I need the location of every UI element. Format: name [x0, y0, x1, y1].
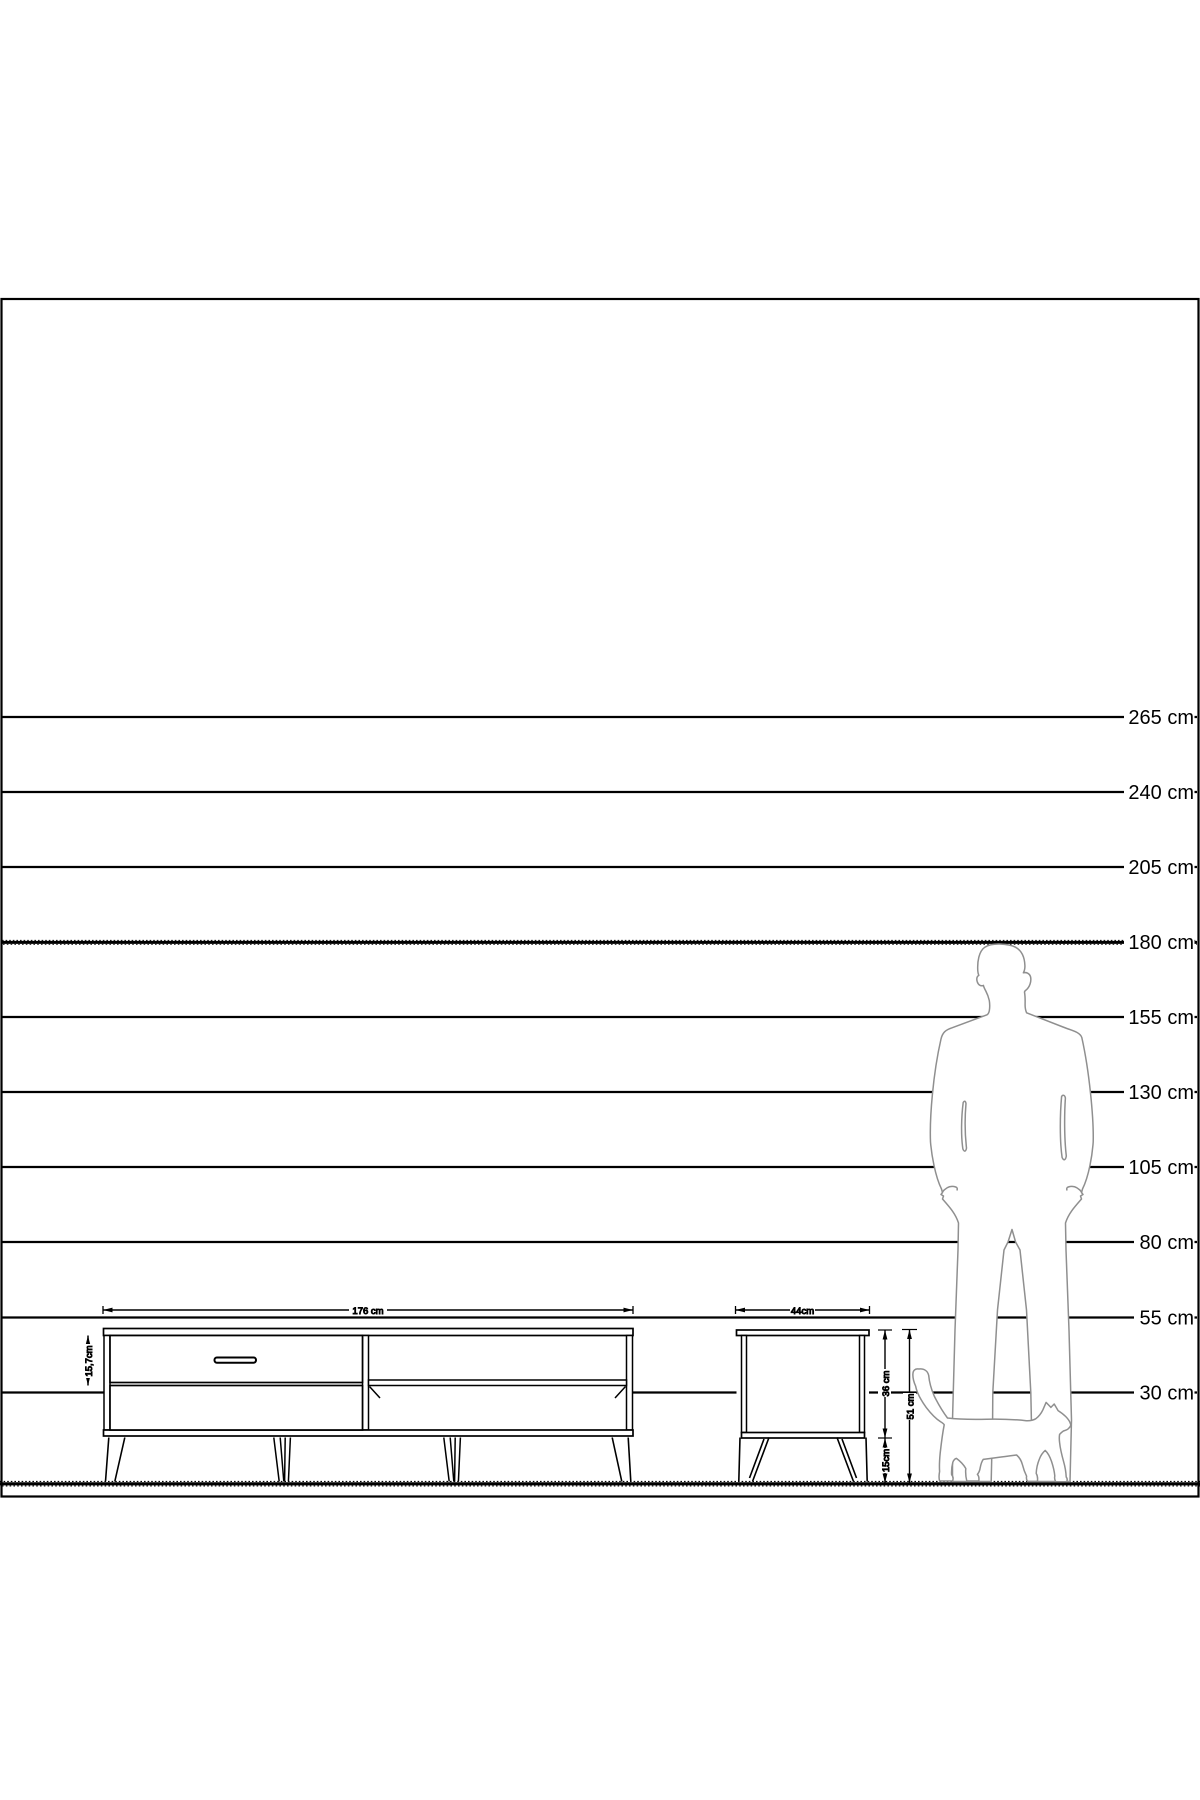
svg-text:15cm: 15cm: [881, 1449, 892, 1472]
svg-text:44cm: 44cm: [791, 1306, 814, 1317]
svg-text:180 cm: 180 cm: [1128, 932, 1194, 954]
svg-text:205 cm: 205 cm: [1128, 857, 1194, 879]
svg-text:51 cm: 51 cm: [906, 1393, 917, 1419]
svg-text:155 cm: 155 cm: [1128, 1007, 1194, 1029]
svg-text:80 cm: 80 cm: [1140, 1232, 1194, 1254]
svg-text:176 cm: 176 cm: [352, 1306, 383, 1317]
svg-text:105 cm: 105 cm: [1128, 1157, 1194, 1179]
svg-text:240 cm: 240 cm: [1128, 782, 1194, 804]
svg-text:55 cm: 55 cm: [1140, 1308, 1194, 1330]
svg-text:130 cm: 130 cm: [1128, 1082, 1194, 1104]
svg-text:30 cm: 30 cm: [1140, 1383, 1194, 1405]
svg-text:265 cm: 265 cm: [1128, 707, 1194, 729]
svg-text:15,7cm: 15,7cm: [84, 1345, 95, 1376]
svg-text:36 cm: 36 cm: [881, 1370, 892, 1396]
